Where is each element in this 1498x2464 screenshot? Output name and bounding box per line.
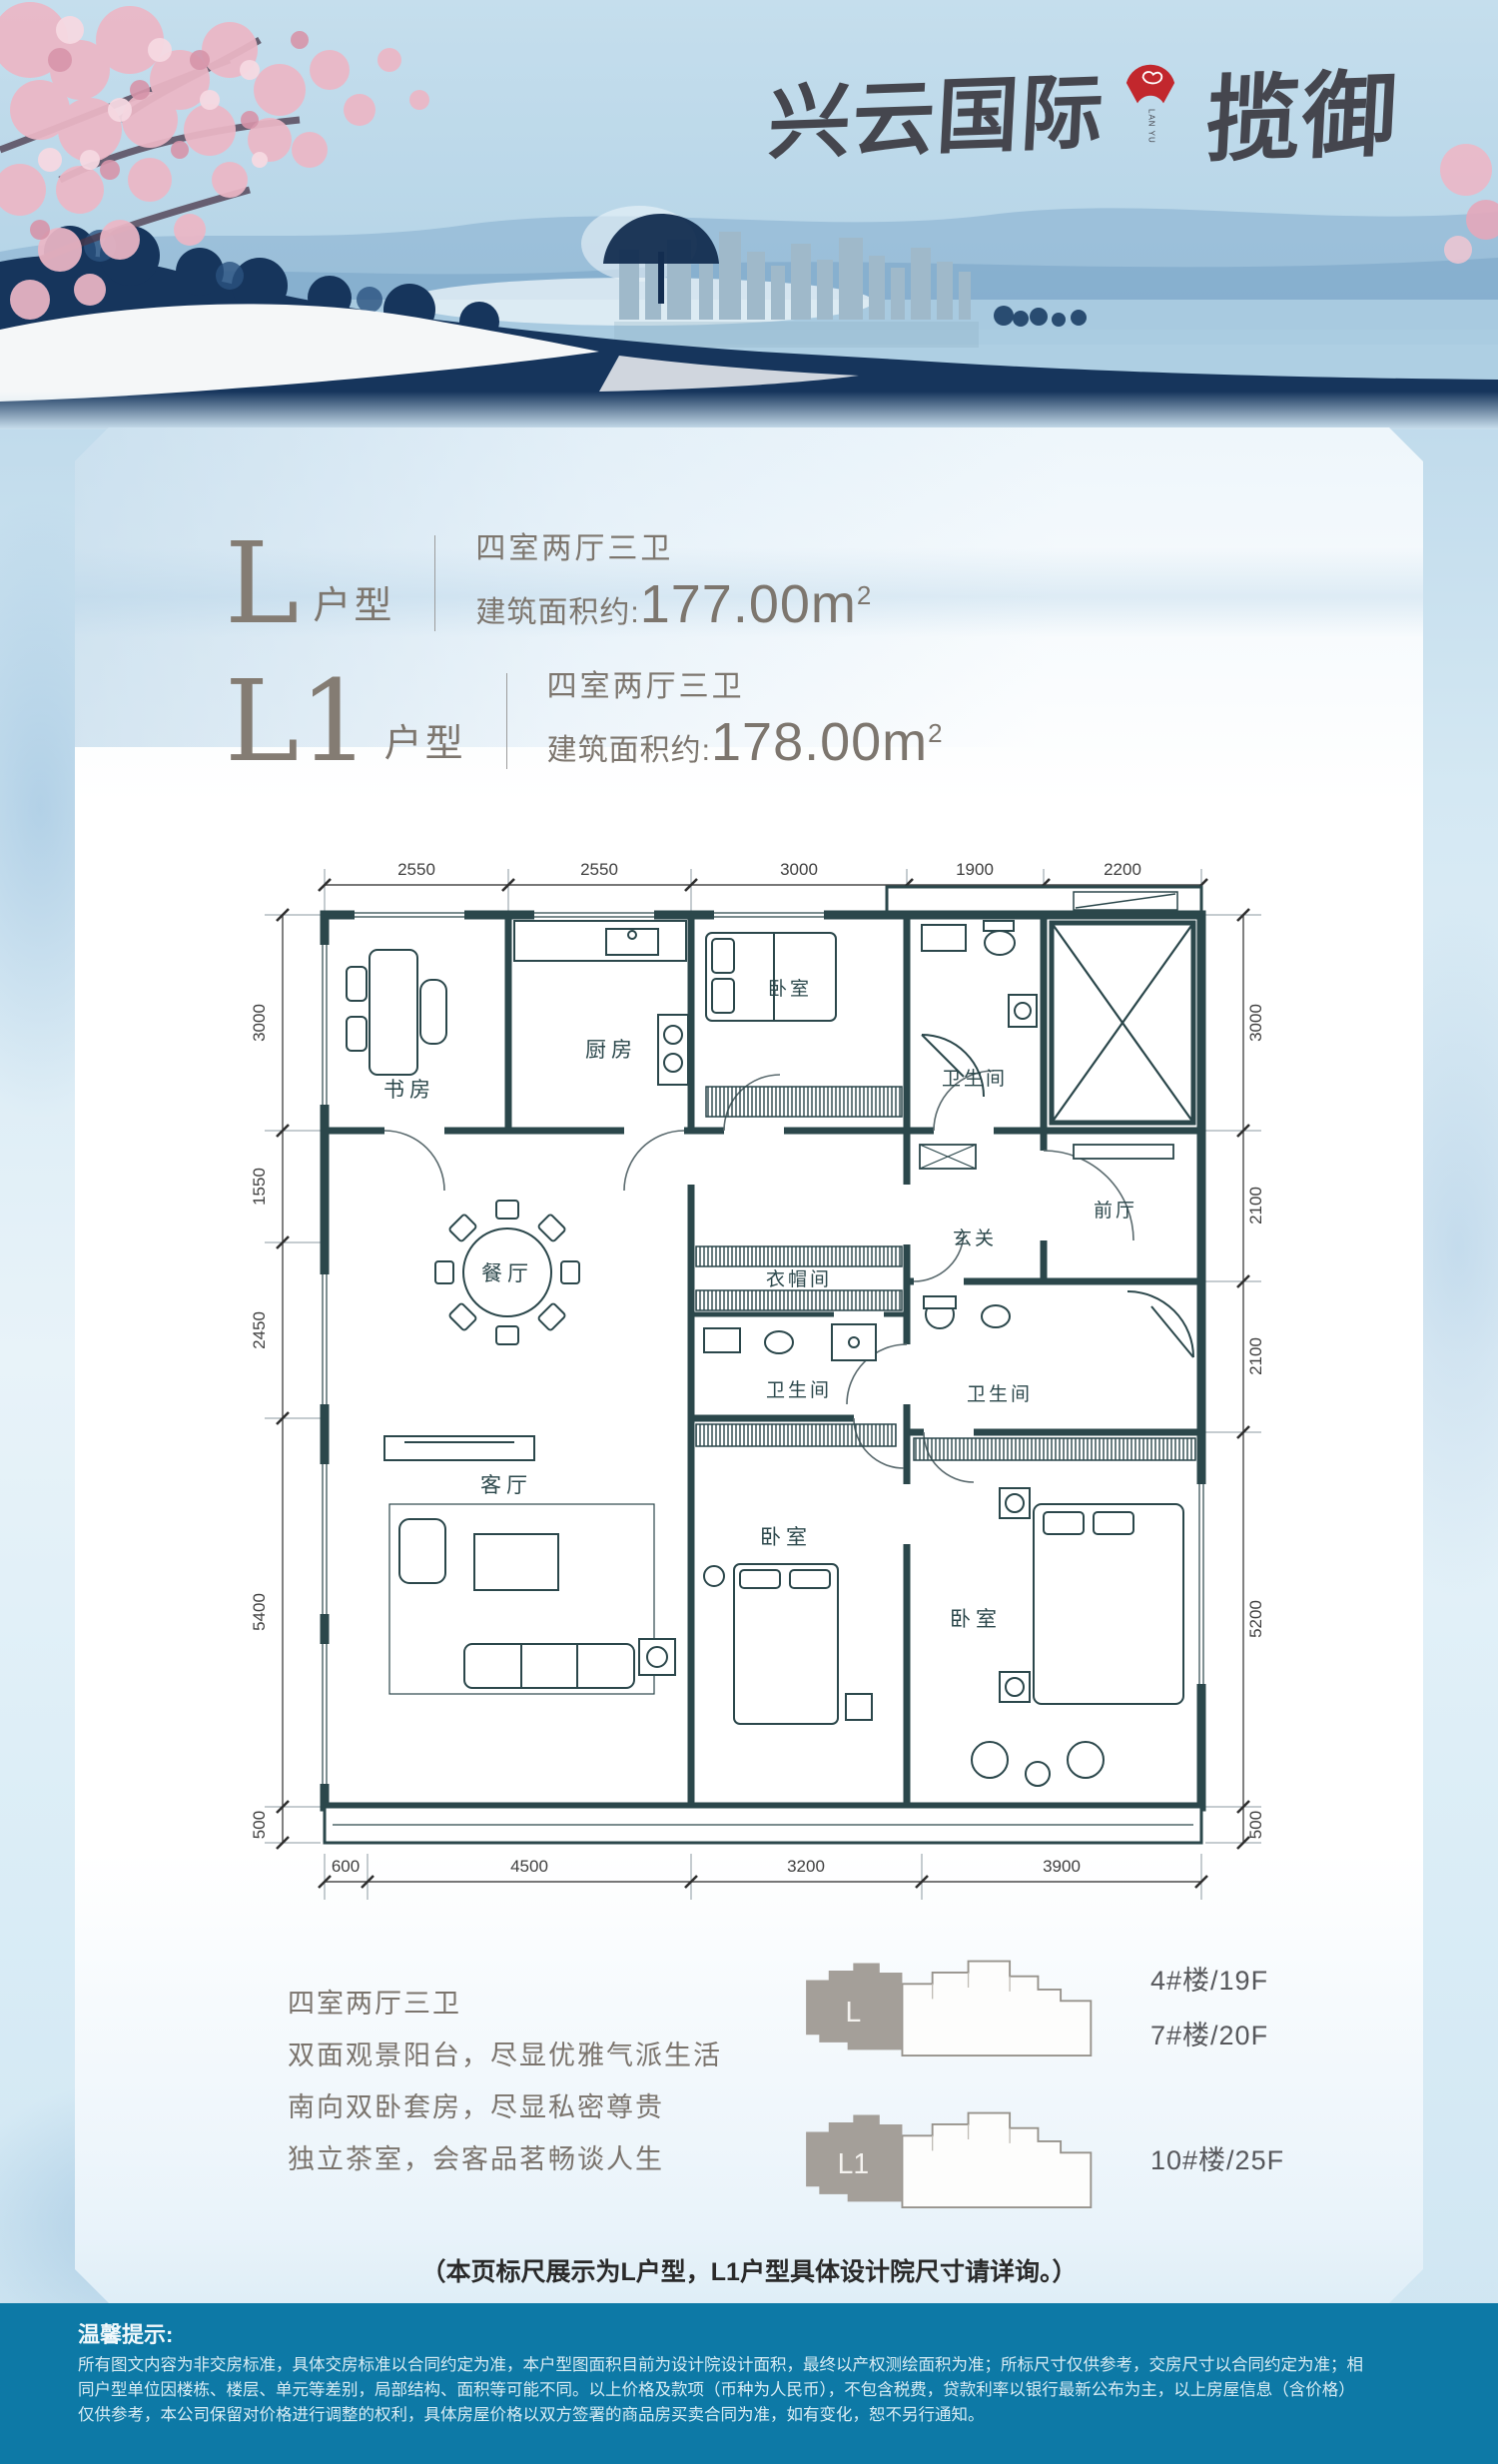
svg-text:2550: 2550: [397, 860, 435, 879]
unit-type-suffix: 户型: [313, 574, 394, 629]
area-prefix: 建筑面积约:: [475, 587, 639, 631]
svg-text:客厅: 客厅: [480, 1474, 532, 1497]
svg-text:2100: 2100: [1246, 1337, 1263, 1375]
feature-line: 双面观景阳台，尽显优雅气派生活: [288, 2034, 722, 2072]
unit-info: L 户型 四室两厅三卫 建筑面积约: 177.00m 2 L1 户型 四室两厅三…: [225, 511, 1223, 773]
svg-text:2100: 2100: [1246, 1187, 1263, 1225]
header-fade: [0, 392, 1498, 429]
svg-text:卫生间: 卫生间: [766, 1379, 832, 1401]
feature-list: 四室两厅三卫 双面观景阳台，尽显优雅气派生活 南向双卧套房，尽显私密尊贵 独立茶…: [288, 1982, 722, 2176]
svg-text:3000: 3000: [250, 1004, 269, 1042]
building-key-plans: L 4#楼/19F 7#楼/20F L1 10#楼/25F: [791, 1936, 1350, 2227]
svg-text:卧室: 卧室: [950, 1608, 1002, 1631]
svg-text:3900: 3900: [1043, 1857, 1081, 1876]
svg-text:卧室: 卧室: [768, 978, 812, 1000]
brand-logo: 兴云国际 LAN YU 揽御: [769, 48, 1408, 188]
footer-line: 仅供参考，本公司保留对价格进行调整的权利，具体房屋价格以双方签署的商品房买卖合同…: [78, 2403, 1438, 2428]
unit-area: 建筑面积约: 178.00m 2: [547, 711, 943, 773]
foyer-cabinet: [920, 1145, 976, 1169]
brand-name-left: 兴云国际: [766, 71, 1107, 165]
svg-text:3200: 3200: [787, 1857, 825, 1876]
building-footprint-L: L: [791, 1942, 1130, 2069]
footer-line: 所有图文内容为非交房标准，具体交房标准以合同约定为准，本户型图面积目前为设计院设…: [78, 2353, 1438, 2378]
building-row-L: L 4#楼/19F 7#楼/20F: [791, 1936, 1350, 2075]
building-unit-label: L1: [838, 2148, 870, 2180]
building-floor-info: 10#楼/25F: [1150, 2138, 1284, 2177]
building-unit-label: L: [845, 1997, 861, 2029]
svg-text:餐厅: 餐厅: [481, 1262, 533, 1285]
svg-text:1550: 1550: [250, 1168, 269, 1206]
feature-line: 独立茶室，会客品茗畅谈人生: [288, 2137, 722, 2176]
front-hall-shelf: [1074, 1145, 1173, 1159]
svg-text:500: 500: [250, 1811, 269, 1839]
svg-text:厨房: 厨房: [585, 1039, 637, 1062]
unit-code: L: [225, 534, 299, 635]
svg-text:衣帽间: 衣帽间: [766, 1268, 832, 1290]
unit-row-L1: L1 户型 四室两厅三卫 建筑面积约: 178.00m 2: [225, 649, 1223, 773]
svg-text:玄关: 玄关: [953, 1228, 997, 1249]
svg-text:前厅: 前厅: [1094, 1200, 1137, 1222]
svg-text:4500: 4500: [510, 1857, 548, 1876]
svg-text:600: 600: [332, 1857, 360, 1876]
footer-line: 同户型单位因楼栋、楼层、单元等差别，局部结构、面积等可能不同。以上价格及款项（币…: [78, 2378, 1438, 2403]
divider: [506, 673, 507, 769]
seal-fan-icon: [1123, 57, 1178, 109]
svg-text:1900: 1900: [956, 860, 994, 879]
divider: [434, 535, 435, 631]
svg-text:3000: 3000: [780, 860, 818, 879]
area-superscript: 2: [928, 718, 942, 749]
feature-line: 南向双卧套房，尽显私密尊贵: [288, 2085, 722, 2124]
floor-plan: 2550 2550 3000 1900 2200 3000 1550 2450 …: [235, 845, 1263, 1919]
svg-text:2550: 2550: [580, 860, 618, 879]
building-row-L1: L1 10#楼/25F: [791, 2087, 1350, 2227]
footer-title: 温馨提示:: [78, 2317, 1438, 2349]
area-prefix: 建筑面积约:: [547, 725, 711, 769]
svg-text:5200: 5200: [1246, 1600, 1263, 1638]
brochure-page: 兴云国际 LAN YU 揽御 L 户型 四室两厅三卫 建筑面积约: 177.00: [0, 0, 1498, 2464]
scale-note: （本页标尺展示为L户型，L1户型具体设计院尺寸请详询。）: [0, 2252, 1498, 2288]
svg-text:卫生间: 卫生间: [967, 1383, 1033, 1405]
area-superscript: 2: [857, 580, 871, 611]
seal-subtext-1: LAN YU: [1146, 109, 1155, 179]
unit-rooms: 四室两厅三卫: [547, 661, 943, 705]
svg-text:3000: 3000: [1246, 1004, 1263, 1042]
svg-text:2450: 2450: [250, 1311, 269, 1349]
unit-area: 建筑面积约: 177.00m 2: [475, 573, 871, 635]
svg-text:卫生间: 卫生间: [942, 1068, 1008, 1090]
svg-text:书房: 书房: [383, 1079, 435, 1102]
floor-plan-drawing: 2550 2550 3000 1900 2200 3000 1550 2450 …: [235, 845, 1263, 1919]
svg-text:500: 500: [1246, 1811, 1263, 1839]
building-floor-info: 7#楼/20F: [1150, 2014, 1268, 2053]
feature-line: 四室两厅三卫: [288, 1982, 722, 2021]
svg-text:5400: 5400: [250, 1593, 269, 1631]
brand-seal: LAN YU: [1119, 57, 1182, 179]
unit-type-suffix: 户型: [384, 712, 466, 767]
building-footprint-L1: L1: [791, 2093, 1130, 2221]
svg-text:卧室: 卧室: [760, 1526, 812, 1549]
brand-name-right: 揽御: [1203, 68, 1400, 169]
elevator-shaft: [1052, 923, 1193, 1123]
city-reflection: [614, 322, 979, 348]
area-value: 177.00m: [640, 573, 857, 635]
area-value: 178.00m: [711, 711, 928, 773]
bottom-balcony-band: [325, 1807, 1201, 1843]
building-floor-info: 4#楼/19F: [1150, 1959, 1268, 1998]
footer-disclaimer: 温馨提示: 所有图文内容为非交房标准，具体交房标准以合同约定为准，本户型图面积目…: [0, 2303, 1498, 2464]
unit-code: L1: [225, 672, 371, 773]
unit-row-L: L 户型 四室两厅三卫 建筑面积约: 177.00m 2: [225, 511, 1223, 635]
svg-text:2200: 2200: [1104, 860, 1141, 879]
unit-rooms: 四室两厅三卫: [475, 523, 871, 567]
